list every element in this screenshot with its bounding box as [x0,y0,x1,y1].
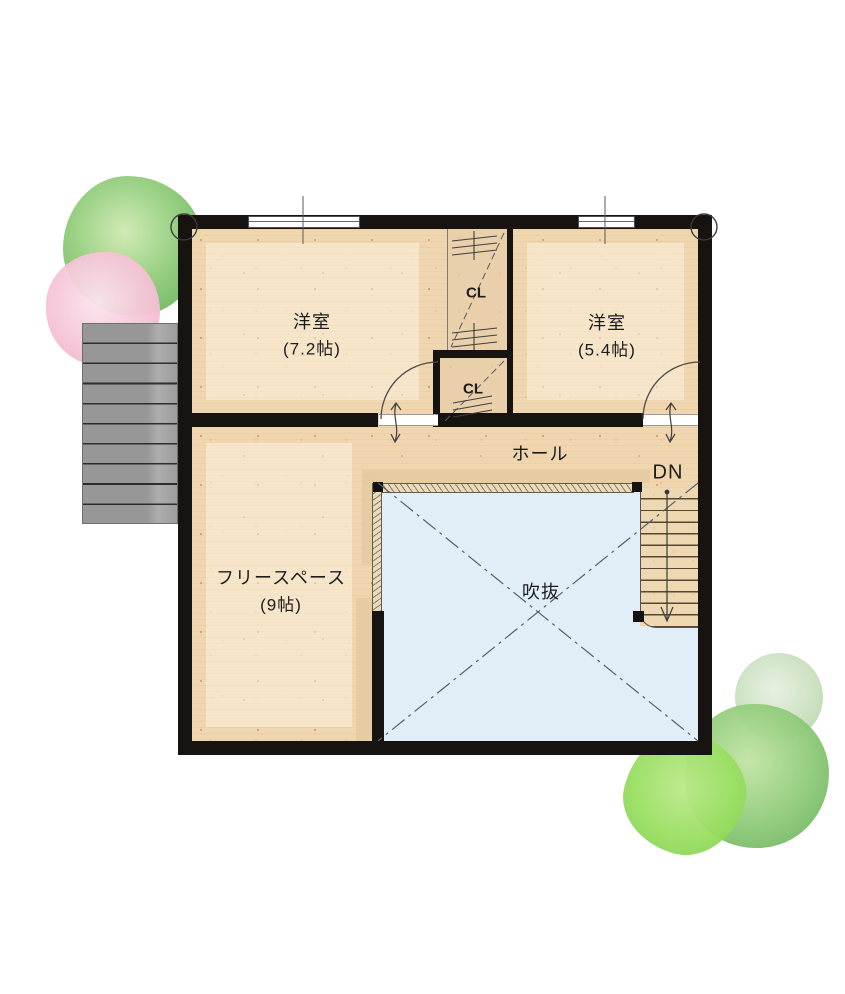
floor-plan-canvas: 洋室 (7.2帖) 洋室 (5.4帖) CL CL ホール DN フリースペース… [0,0,845,994]
door-opening-room72 [379,414,438,426]
wall-void-left [372,611,384,741]
void-left-shadow-band [356,598,372,741]
roof-below [82,323,178,524]
hall-label: ホール [512,440,569,466]
railing-post-right [632,482,642,492]
staircase [640,488,698,628]
void-under-stairs [640,626,698,741]
closet-lower-label: CL [463,381,483,398]
void-railing-top [375,483,634,493]
room-5-4-name: 洋室 [588,309,626,335]
wall-room72-hall [192,413,378,427]
closet-upper-label: CL [466,285,486,302]
void-label: 吹抜 [522,578,560,604]
wall-closet-right [507,229,513,427]
void-top-shadow-band [362,470,650,483]
void-railing-left [372,483,382,611]
door-opening-room54 [643,414,698,426]
void-open-area [378,483,640,741]
free-space-size: (9帖) [260,591,302,616]
window-room72 [248,216,360,228]
window-room54 [578,216,635,228]
wall-room54-hall [438,413,643,427]
room-7-2-name: 洋室 [293,308,331,334]
room-7-2-size: (7.2帖) [283,335,341,360]
wall-closet-divider [433,350,513,358]
stairs-dn-label: DN [653,462,684,485]
room-5-4-size: (5.4帖) [578,336,636,361]
railing-post-corner [373,482,383,492]
stair-newel-post [633,611,644,622]
free-space-name: フリースペース [216,564,346,590]
